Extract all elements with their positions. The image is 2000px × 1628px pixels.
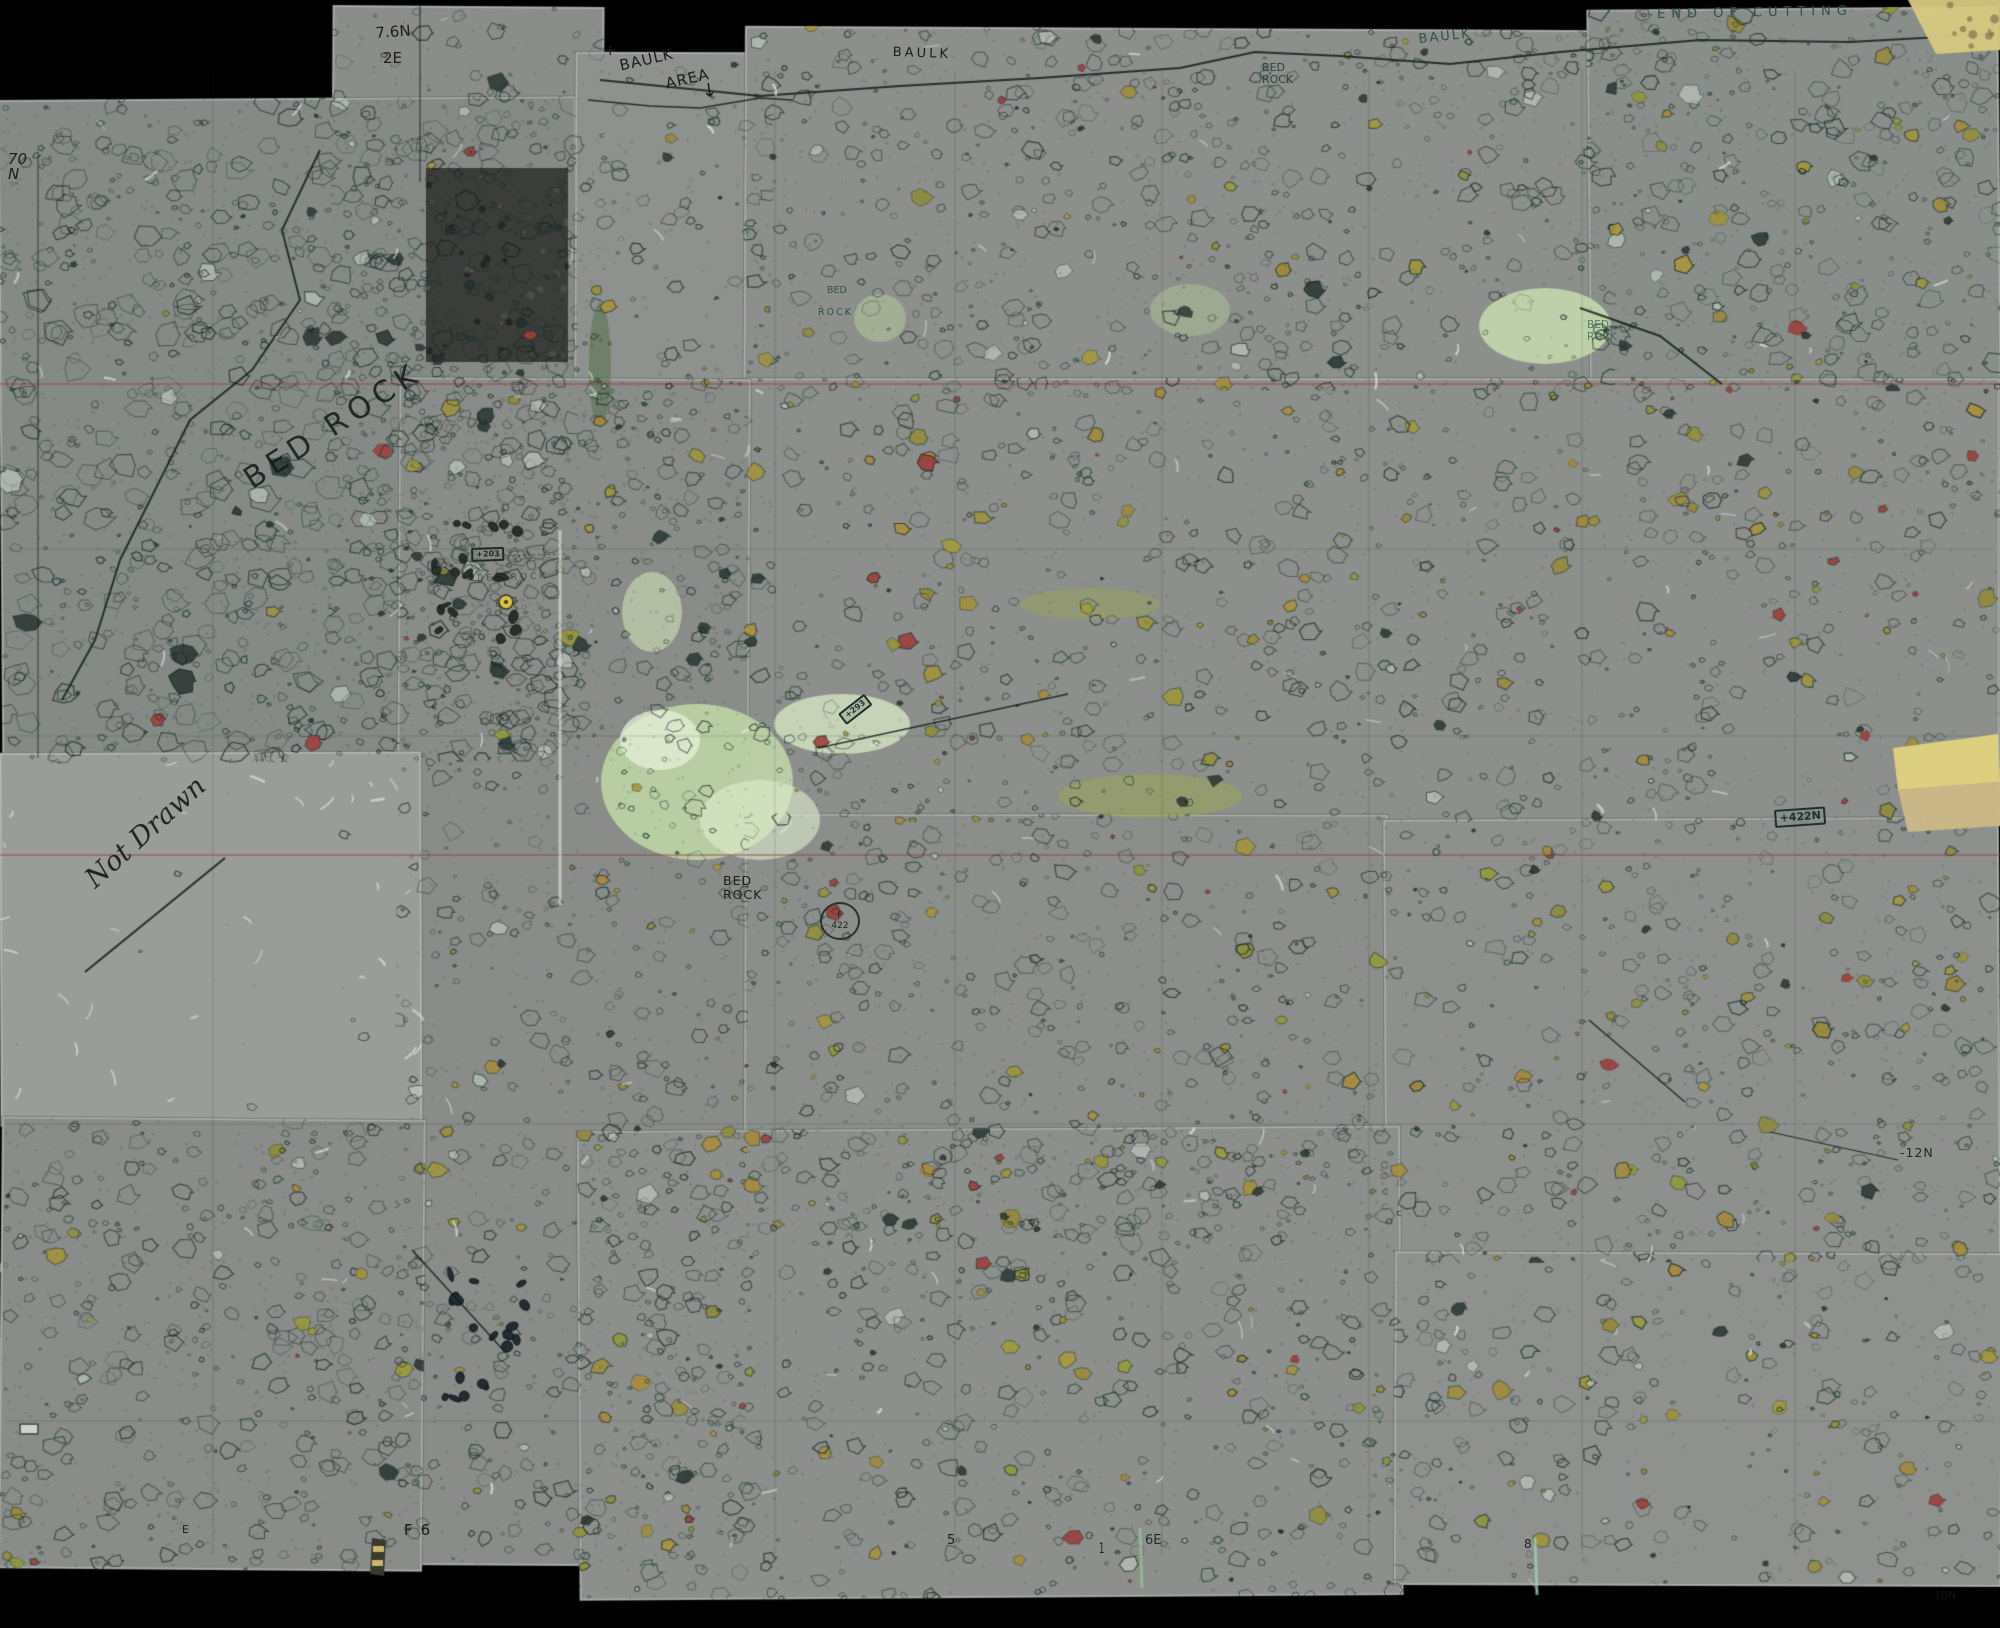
annotation-tick-5: 5 [947,1534,955,1549]
annotation-grid-7-6n: 7.6N [375,23,411,42]
annotation-grid-e: E [182,1524,189,1536]
annotation-bed-rock-small-rock: ROCK [818,308,853,319]
annotation-plus-mark: + [604,42,617,59]
annotation-tick-6e: 6E [1145,1534,1162,1549]
annotation-grid-f6: F6 [404,1522,438,1539]
excavation-plan-sheet-mosaic: END OF CUTTING BAULK BED ROCK BAULK + BA… [0,0,2000,1628]
annotation-grid-12n: -12N [1900,1146,1934,1160]
annotation-bed-rock-center: BED ROCK [723,874,762,902]
annotation-find-f422: F 422 [820,902,860,940]
annotation-tick-1: 1 [1099,1542,1104,1558]
annotation-tag-203: +203 [471,547,505,563]
annotation-baulk-center: BAULK [892,46,951,63]
annotation-tick-8: 8 [1524,1538,1532,1551]
annotation-bed-rock-top: BED ROCK [1262,62,1293,87]
annotation-grid-2e: 2E [383,50,402,67]
plan-texture-canvas [0,0,2000,1628]
annotation-grid-10n: 10N [1934,1590,1956,1602]
annotation-baulk-area-arrow-icon: ↓ [700,80,719,103]
annotation-bed-rock-small-bed: BED [827,286,847,297]
annotation-bed-rock-right: BED ROCK [1587,320,1617,344]
annotation-grid-70n: 70 N [8,152,27,182]
